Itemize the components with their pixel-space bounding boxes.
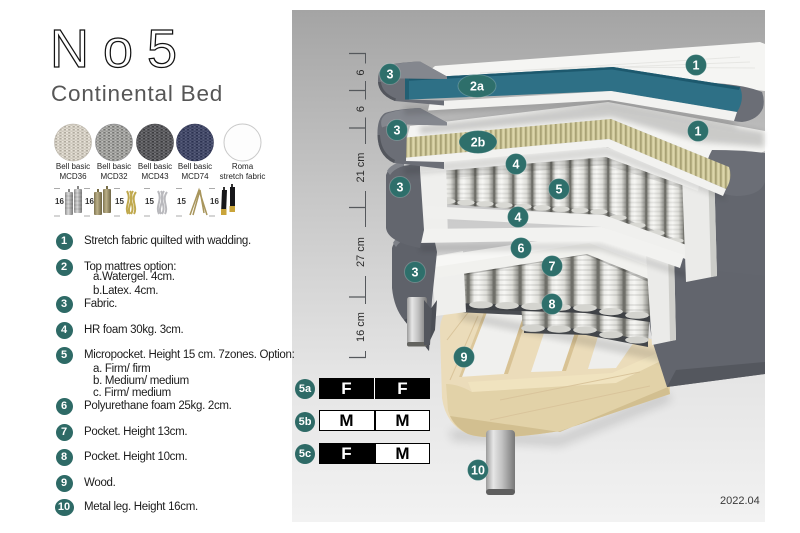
svg-text:3: 3 [387,68,394,82]
svg-text:1: 1 [695,125,702,139]
svg-text:4: 4 [513,158,520,172]
svg-text:2a: 2a [470,80,485,94]
svg-text:3: 3 [412,266,419,280]
svg-text:3: 3 [397,181,404,195]
svg-text:9: 9 [461,351,468,365]
svg-text:1: 1 [693,59,700,73]
svg-text:6: 6 [518,242,525,256]
svg-text:2b: 2b [471,136,486,150]
svg-text:10: 10 [471,464,485,478]
svg-text:8: 8 [549,298,556,312]
svg-text:27 cm: 27 cm [355,237,367,267]
svg-text:5: 5 [556,183,563,197]
svg-text:3: 3 [394,124,401,138]
svg-text:6: 6 [355,69,367,75]
svg-text:6: 6 [355,106,367,112]
svg-text:4: 4 [515,211,522,225]
svg-text:16 cm: 16 cm [355,312,367,342]
svg-text:7: 7 [549,260,556,274]
svg-text:21 cm: 21 cm [355,153,367,183]
